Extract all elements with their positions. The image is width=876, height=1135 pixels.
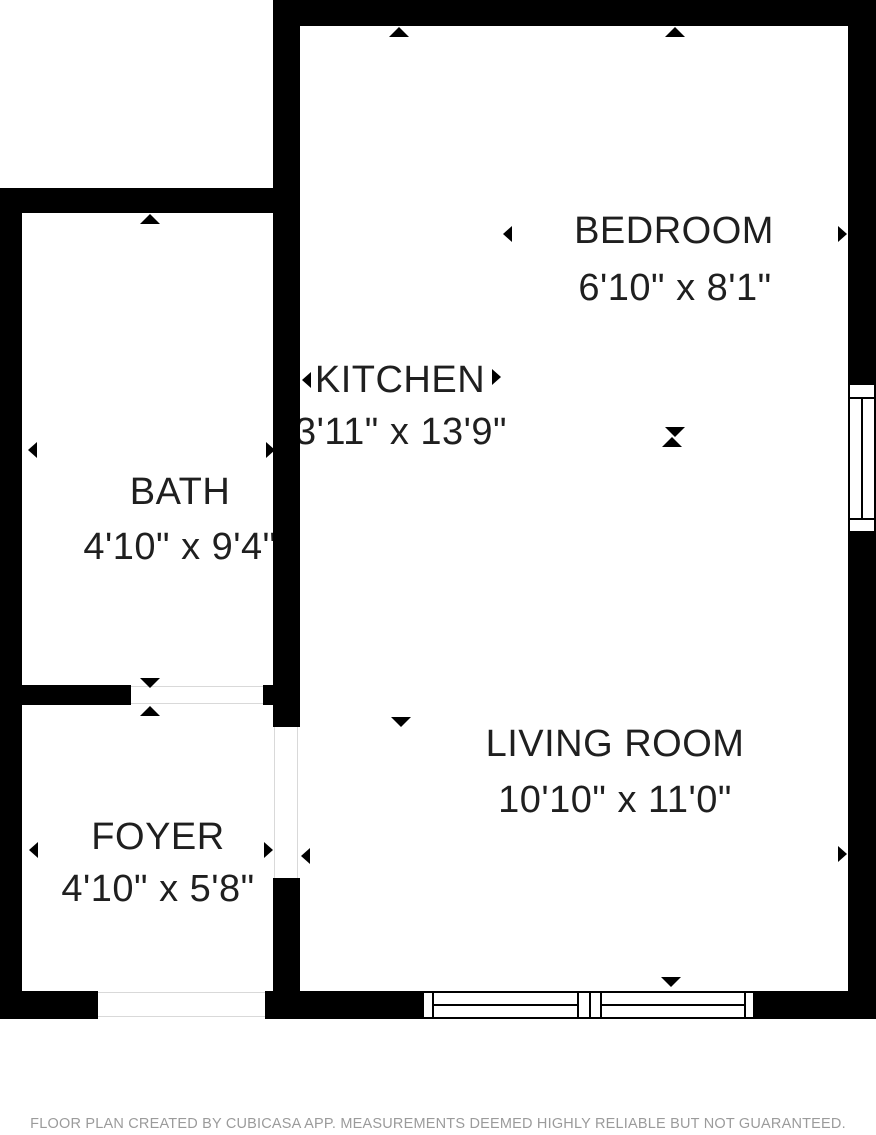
foyer-dimensions: 4'10" x 5'8" <box>61 870 254 908</box>
wall-top <box>273 0 876 26</box>
foyer-left-marker-icon <box>29 842 38 858</box>
foyer-living-opening-left <box>274 727 275 878</box>
bedroom-living-boundary-up-marker-icon <box>662 437 682 447</box>
bedroom-top-marker-icon <box>665 27 685 37</box>
bedroom-living-boundary-down-marker-icon <box>665 427 685 437</box>
wall-bath-foyer-left <box>0 685 131 705</box>
bath-label: BATH <box>130 473 231 511</box>
wall-bottom-living-right <box>755 991 876 1019</box>
living-room-right-marker-icon <box>838 846 847 862</box>
living-room-dimensions: 10'10" x 11'0" <box>498 781 732 819</box>
bedroom-window <box>848 383 876 533</box>
living-room-window <box>422 991 755 1019</box>
bedroom-right-marker-icon <box>838 226 847 242</box>
bath-door-threshold-bottom <box>131 703 263 704</box>
living-room-top-marker-icon <box>391 717 411 727</box>
bedroom-dimensions: 6'10" x 8'1" <box>578 269 771 307</box>
bath-door-marker-icon <box>140 678 160 688</box>
kitchen-label: KITCHEN <box>315 361 485 399</box>
wall-bath-top <box>0 188 300 213</box>
footer-disclaimer: FLOOR PLAN CREATED BY CUBICASA APP. MEAS… <box>30 1115 846 1133</box>
living-room-label: LIVING ROOM <box>486 725 745 763</box>
wall-bottom-foyer-left <box>0 991 98 1019</box>
living-room-window-marker-icon <box>661 977 681 987</box>
kitchen-dimensions: 3'11" x 13'9" <box>295 413 507 451</box>
wall-bath-foyer-right <box>263 685 300 705</box>
living-room-left-marker-icon <box>301 848 310 864</box>
bath-right-marker-icon <box>266 442 275 458</box>
kitchen-right-marker-icon <box>492 369 501 385</box>
wall-right-lower <box>848 533 876 1019</box>
wall-bottom-living-left <box>300 991 422 1019</box>
wall-bath-kitchen <box>273 0 300 727</box>
bath-top-marker-icon <box>140 214 160 224</box>
bedroom-label: BEDROOM <box>574 212 774 250</box>
wall-left <box>0 188 22 1019</box>
bath-left-marker-icon <box>28 442 37 458</box>
foyer-door-marker-icon <box>140 706 160 716</box>
foyer-right-marker-icon <box>264 842 273 858</box>
foyer-living-opening-right <box>297 727 298 878</box>
entry-door-threshold-bottom <box>98 1016 265 1017</box>
entry-door-threshold-top <box>98 992 265 993</box>
wall-bottom-foyer-right <box>265 991 300 1019</box>
wall-right-upper <box>848 0 876 383</box>
foyer-label: FOYER <box>91 818 224 856</box>
bedroom-left-marker-icon <box>503 226 512 242</box>
kitchen-left-marker-icon <box>302 372 311 388</box>
bath-dimensions: 4'10" x 9'4" <box>83 528 276 566</box>
floor-plan: BEDROOM 6'10" x 8'1" KITCHEN 3'11" x 13'… <box>0 0 876 1135</box>
kitchen-top-marker-icon <box>389 27 409 37</box>
